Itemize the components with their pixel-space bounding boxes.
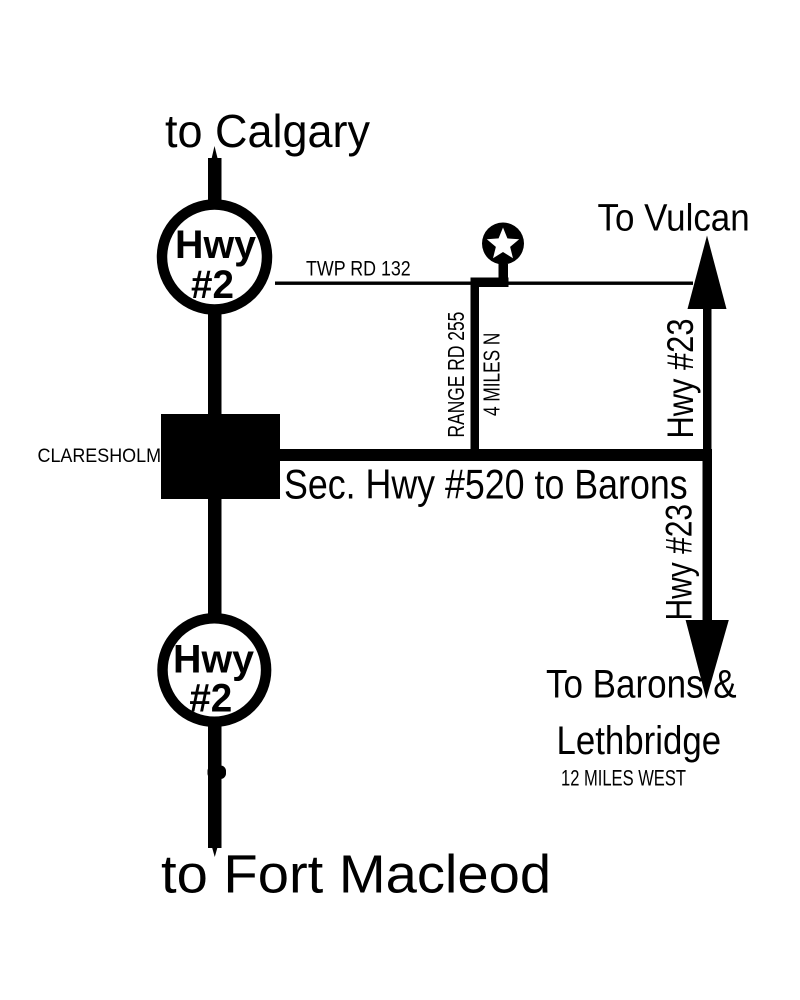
svg-text:#2: #2 [191,262,234,307]
svg-text:to Fort Macleod: to Fort Macleod [161,843,551,904]
svg-text:To Barons &: To Barons & [546,661,737,706]
svg-text:CLARESHOLM: CLARESHOLM [38,445,162,467]
svg-text:Sec. Hwy #520 to Barons: Sec. Hwy #520 to Barons [284,462,688,508]
svg-text:12 MILES WEST: 12 MILES WEST [561,766,686,791]
svg-text:Hwy: Hwy [175,223,256,267]
svg-text:Hwy: Hwy [173,637,254,681]
svg-text:RANGE RD 255: RANGE RD 255 [445,312,470,438]
svg-text:TWP RD 132: TWP RD 132 [306,257,411,281]
svg-text:Hwy #23: Hwy #23 [660,504,701,621]
svg-text:#2: #2 [189,676,232,721]
svg-text:to Calgary: to Calgary [165,106,370,158]
svg-text:4 MILES N: 4 MILES N [480,333,505,416]
svg-text:To Vulcan: To Vulcan [598,196,750,239]
svg-text:Lethbridge: Lethbridge [557,718,722,763]
svg-text:Hwy #23: Hwy #23 [660,319,701,439]
